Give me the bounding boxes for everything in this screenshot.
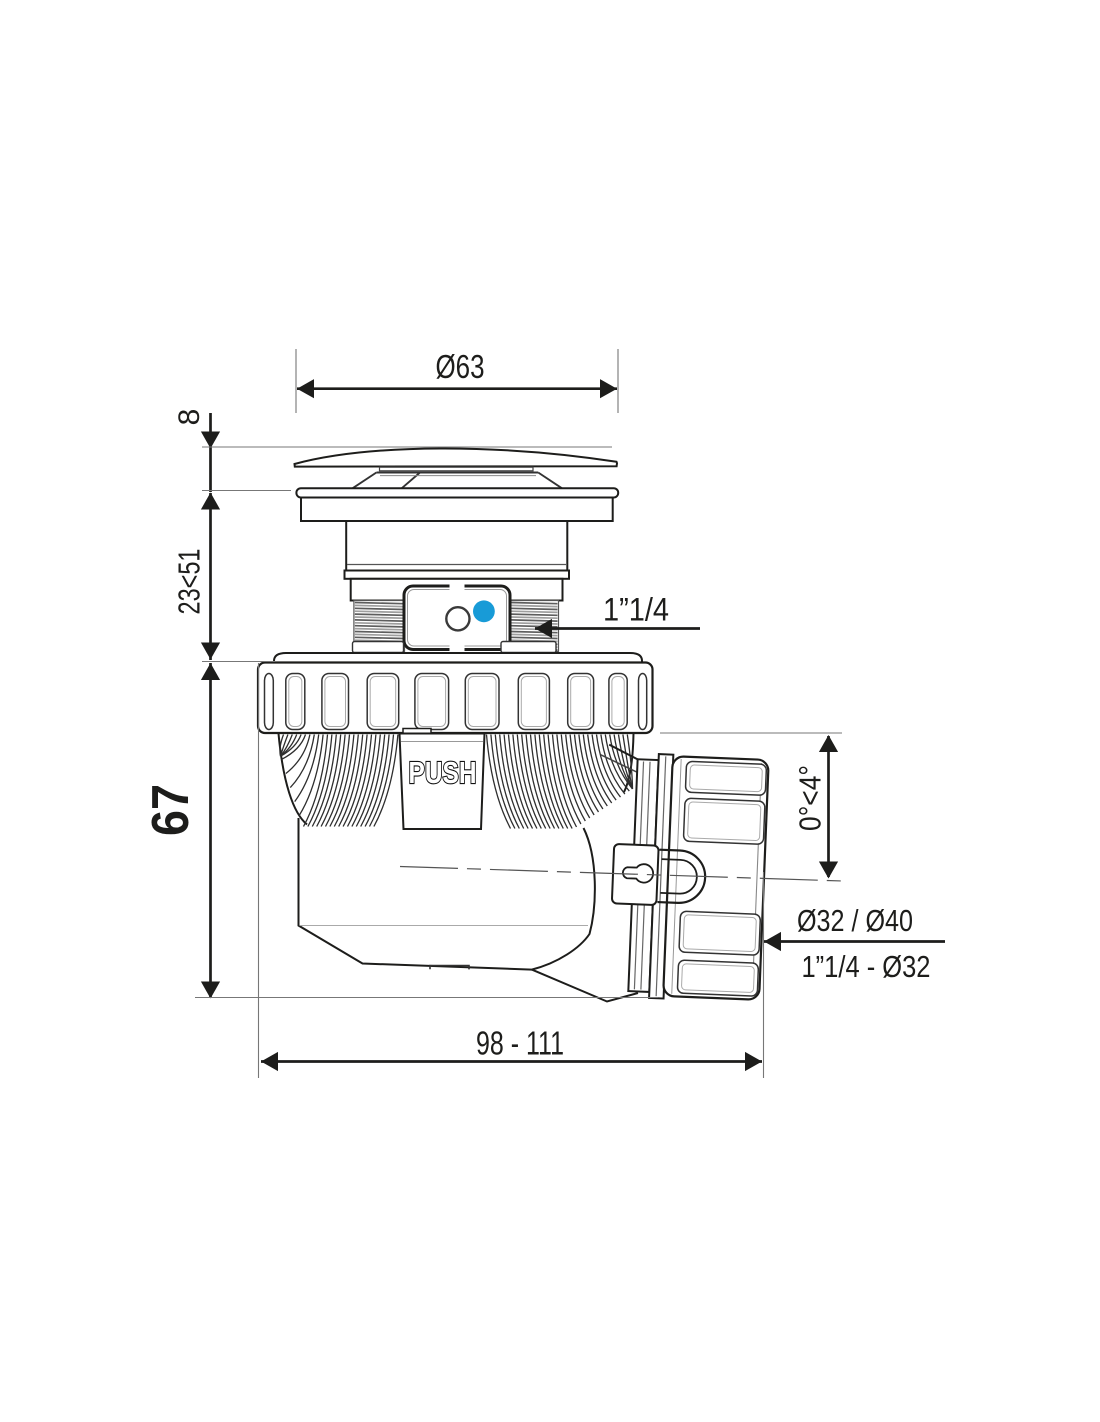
svg-text:23<51: 23<51 (172, 549, 207, 615)
svg-text:0°<4°: 0°<4° (793, 765, 828, 831)
svg-text:Ø63: Ø63 (436, 348, 485, 385)
svg-text:8: 8 (173, 409, 206, 426)
svg-text:67: 67 (142, 784, 200, 836)
svg-text:98 - 111: 98 - 111 (476, 1025, 564, 1062)
svg-text:1”1/4 - Ø32: 1”1/4 - Ø32 (802, 949, 931, 984)
svg-text:PUSH: PUSH (409, 755, 477, 790)
svg-text:Ø32 / Ø40: Ø32 / Ø40 (797, 903, 913, 938)
svg-text:1”1/4: 1”1/4 (603, 592, 669, 628)
